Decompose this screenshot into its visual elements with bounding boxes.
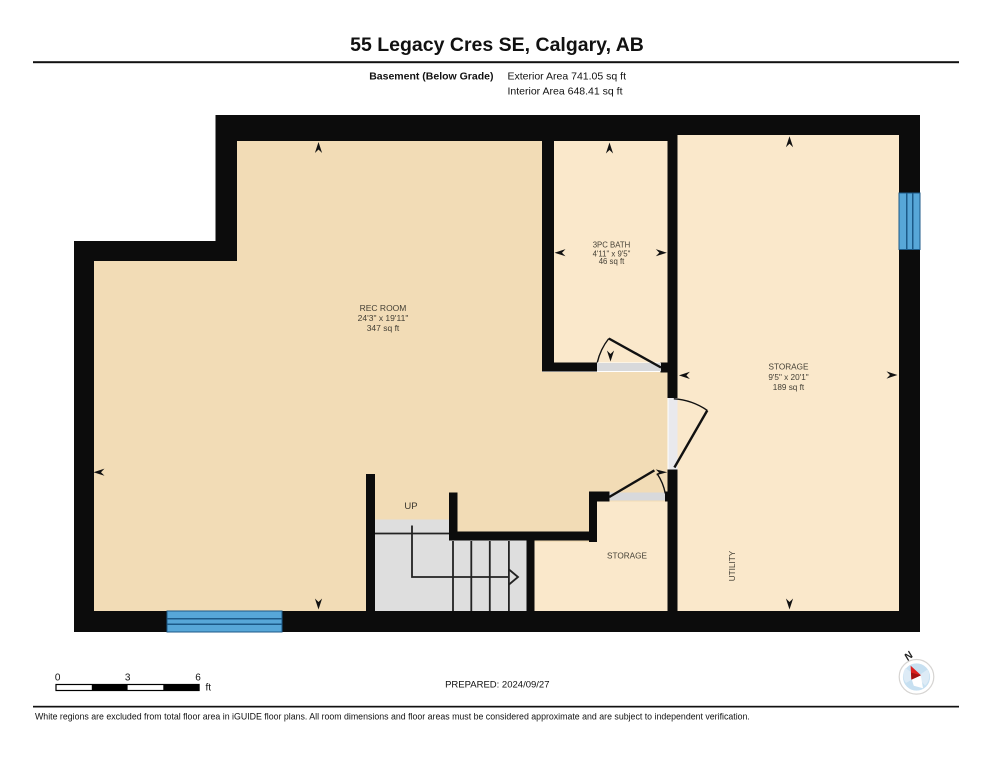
svg-text:REC ROOM: REC ROOM bbox=[360, 303, 407, 313]
svg-text:UTILITY: UTILITY bbox=[728, 550, 737, 581]
svg-text:STORAGE: STORAGE bbox=[769, 363, 809, 372]
svg-text:Basement (Below Grade): Basement (Below Grade) bbox=[369, 71, 493, 83]
svg-text:3PC BATH: 3PC BATH bbox=[593, 241, 631, 250]
svg-text:Exterior Area 741.05 sq ft: Exterior Area 741.05 sq ft bbox=[508, 71, 627, 83]
svg-text:PREPARED: 2024/09/27: PREPARED: 2024/09/27 bbox=[445, 680, 549, 691]
svg-text:STORAGE: STORAGE bbox=[607, 552, 647, 561]
svg-text:46 sq ft: 46 sq ft bbox=[599, 257, 625, 266]
svg-text:6: 6 bbox=[195, 673, 201, 684]
svg-text:UP: UP bbox=[404, 501, 417, 512]
svg-text:0: 0 bbox=[55, 673, 61, 684]
svg-text:ft: ft bbox=[206, 683, 212, 694]
svg-text:3: 3 bbox=[125, 673, 131, 684]
svg-text:24'3" x 19'11": 24'3" x 19'11" bbox=[358, 313, 409, 323]
svg-text:Interior Area 648.41 sq ft: Interior Area 648.41 sq ft bbox=[508, 86, 623, 98]
svg-text:347 sq ft: 347 sq ft bbox=[367, 323, 400, 333]
svg-text:189 sq ft: 189 sq ft bbox=[773, 383, 805, 392]
svg-text:White regions are excluded fro: White regions are excluded from total fl… bbox=[35, 712, 750, 722]
svg-text:55 Legacy Cres SE, Calgary, AB: 55 Legacy Cres SE, Calgary, AB bbox=[350, 34, 644, 56]
svg-text:9'5" x 20'1": 9'5" x 20'1" bbox=[768, 373, 808, 382]
